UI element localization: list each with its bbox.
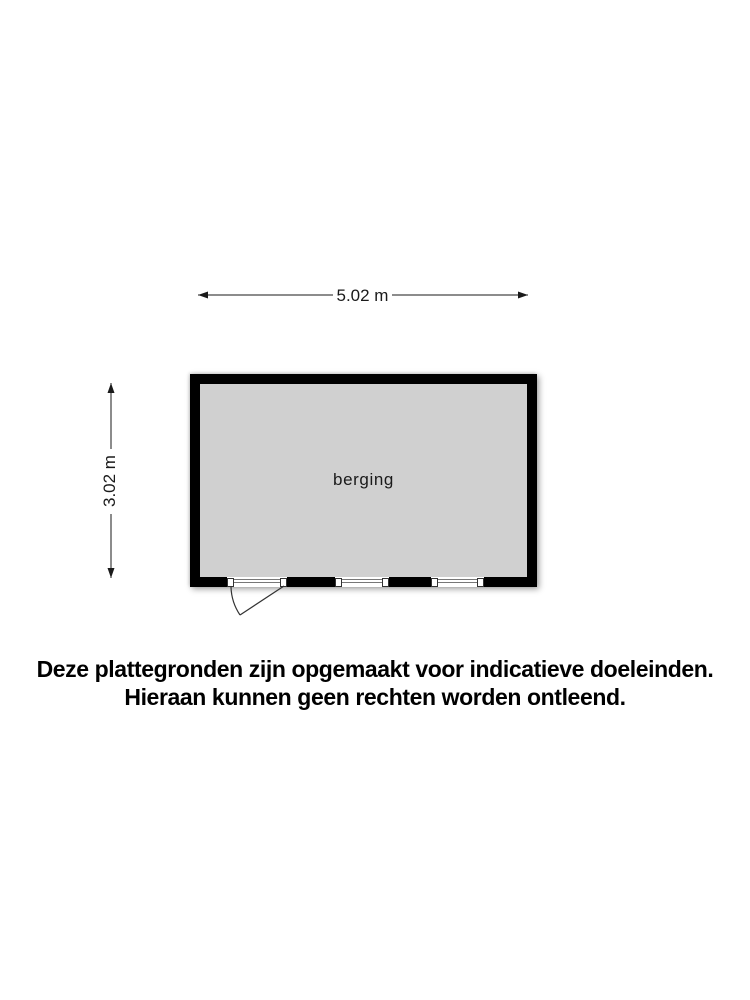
window-glass-line xyxy=(438,582,477,583)
window xyxy=(431,577,484,587)
door-jamb xyxy=(280,578,287,587)
arrow-left-icon xyxy=(198,292,208,299)
floorplan-page: 5.02 m 3.02 m berging xyxy=(0,0,750,1000)
window-jamb xyxy=(431,578,438,587)
door-swing-arc xyxy=(231,587,240,615)
window-jamb xyxy=(335,578,342,587)
disclaimer-line-2: Hieraan kunnen geen rechten worden ontle… xyxy=(0,683,750,711)
door-threshold-line xyxy=(234,579,280,580)
arrow-down-icon xyxy=(108,568,115,578)
height-dimension-label: 3.02 m xyxy=(100,446,120,516)
room-label: berging xyxy=(200,470,527,490)
door-panel-line xyxy=(240,586,284,615)
window-glass-line xyxy=(342,579,382,580)
disclaimer: Deze plattegronden zijn opgemaakt voor i… xyxy=(0,655,750,711)
window-jamb xyxy=(382,578,389,587)
arrow-up-icon xyxy=(108,383,115,393)
door-jamb xyxy=(227,578,234,587)
disclaimer-line-1: Deze plattegronden zijn opgemaakt voor i… xyxy=(0,655,750,683)
door-opening xyxy=(227,577,287,587)
window-jamb xyxy=(477,578,484,587)
door-threshold-line xyxy=(234,582,280,583)
arrow-right-icon xyxy=(518,292,528,299)
window xyxy=(335,577,389,587)
window-glass-line xyxy=(342,582,382,583)
window-glass-line xyxy=(438,579,477,580)
width-dimension-label: 5.02 m xyxy=(325,286,400,306)
